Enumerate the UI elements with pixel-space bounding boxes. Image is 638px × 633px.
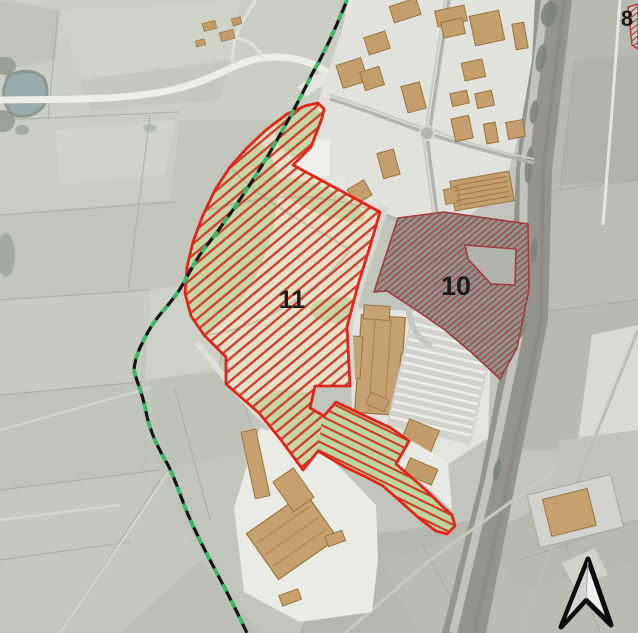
svg-text:10: 10 — [441, 271, 471, 301]
svg-text:11: 11 — [279, 286, 306, 314]
svg-text:8: 8 — [621, 6, 633, 31]
